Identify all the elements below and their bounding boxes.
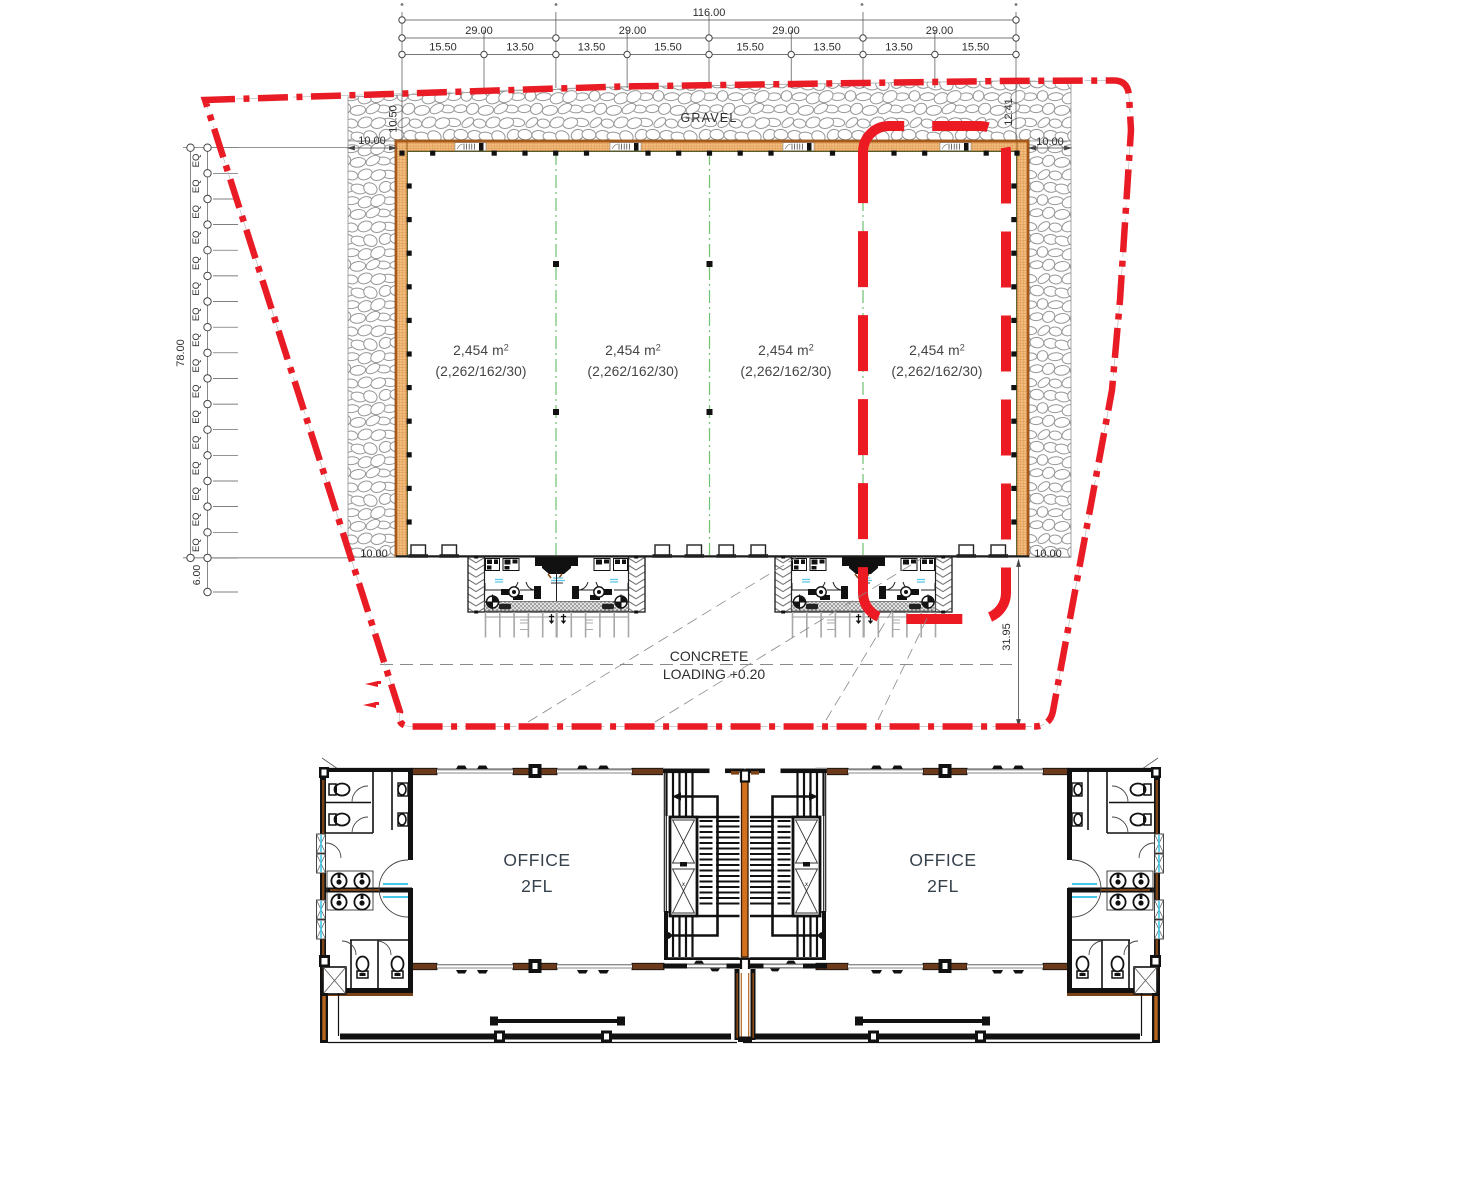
svg-text:(2,262/162/30): (2,262/162/30) — [587, 364, 678, 379]
svg-text:13.50: 13.50 — [885, 42, 913, 54]
svg-text:OFFICE: OFFICE — [503, 850, 570, 870]
svg-text:13.50: 13.50 — [813, 42, 841, 54]
svg-text:10.00: 10.00 — [358, 135, 386, 147]
svg-text:GRAVEL: GRAVEL — [681, 111, 738, 125]
svg-text:15.50: 15.50 — [962, 42, 990, 54]
svg-text:EQ: EQ — [191, 513, 202, 527]
svg-text:EQ: EQ — [191, 436, 202, 450]
svg-text:29.00: 29.00 — [926, 25, 954, 37]
svg-text:EQ: EQ — [191, 538, 202, 552]
svg-text:CONCRETE: CONCRETE — [670, 648, 749, 664]
svg-text:EQ: EQ — [191, 384, 202, 398]
svg-text:29.00: 29.00 — [619, 25, 647, 37]
svg-text:EQ: EQ — [191, 231, 202, 245]
svg-text:EQ: EQ — [191, 256, 202, 270]
svg-text:2,454 m2: 2,454 m2 — [453, 343, 509, 359]
svg-text:6.00: 6.00 — [191, 565, 203, 586]
svg-text:(2,262/162/30): (2,262/162/30) — [891, 364, 982, 379]
svg-text:13.50: 13.50 — [506, 42, 534, 54]
svg-text:29.00: 29.00 — [772, 25, 800, 37]
svg-text:EQ: EQ — [191, 359, 202, 373]
svg-text:OFFICE: OFFICE — [909, 850, 976, 870]
svg-text:15.50: 15.50 — [654, 42, 682, 54]
svg-text:15.50: 15.50 — [429, 42, 457, 54]
svg-text:EQ: EQ — [191, 282, 202, 296]
svg-text:12.41: 12.41 — [1003, 98, 1015, 126]
svg-text:29.00: 29.00 — [465, 25, 493, 37]
svg-text:(2,262/162/30): (2,262/162/30) — [740, 364, 831, 379]
svg-text:13.50: 13.50 — [578, 42, 606, 54]
svg-text:2FL: 2FL — [927, 876, 959, 896]
svg-text:EQ: EQ — [191, 307, 202, 321]
svg-text:10.00: 10.00 — [1034, 548, 1062, 560]
svg-text:78.00: 78.00 — [175, 339, 187, 367]
svg-text:31.95: 31.95 — [1001, 623, 1013, 651]
svg-text:EQ: EQ — [191, 333, 202, 347]
svg-text:10.00: 10.00 — [1036, 136, 1064, 148]
svg-text:2,454 m2: 2,454 m2 — [758, 343, 814, 359]
svg-text:10.00: 10.00 — [360, 548, 388, 560]
svg-text:LOADING +0.20: LOADING +0.20 — [663, 666, 766, 682]
svg-text:2,454 m2: 2,454 m2 — [605, 343, 661, 359]
svg-text:EQ: EQ — [191, 179, 202, 193]
svg-text:EQ: EQ — [191, 487, 202, 501]
svg-text:(2,262/162/30): (2,262/162/30) — [435, 364, 526, 379]
svg-text:EQ: EQ — [191, 461, 202, 475]
svg-text:2FL: 2FL — [521, 876, 553, 896]
svg-text:EQ: EQ — [191, 205, 202, 219]
svg-text:116.00: 116.00 — [693, 7, 726, 19]
svg-text:10.50: 10.50 — [388, 105, 400, 133]
svg-text:2,454 m2: 2,454 m2 — [909, 343, 965, 359]
svg-text:15.50: 15.50 — [736, 42, 764, 54]
svg-text:EQ: EQ — [191, 410, 202, 424]
svg-text:EQ: EQ — [191, 154, 202, 168]
